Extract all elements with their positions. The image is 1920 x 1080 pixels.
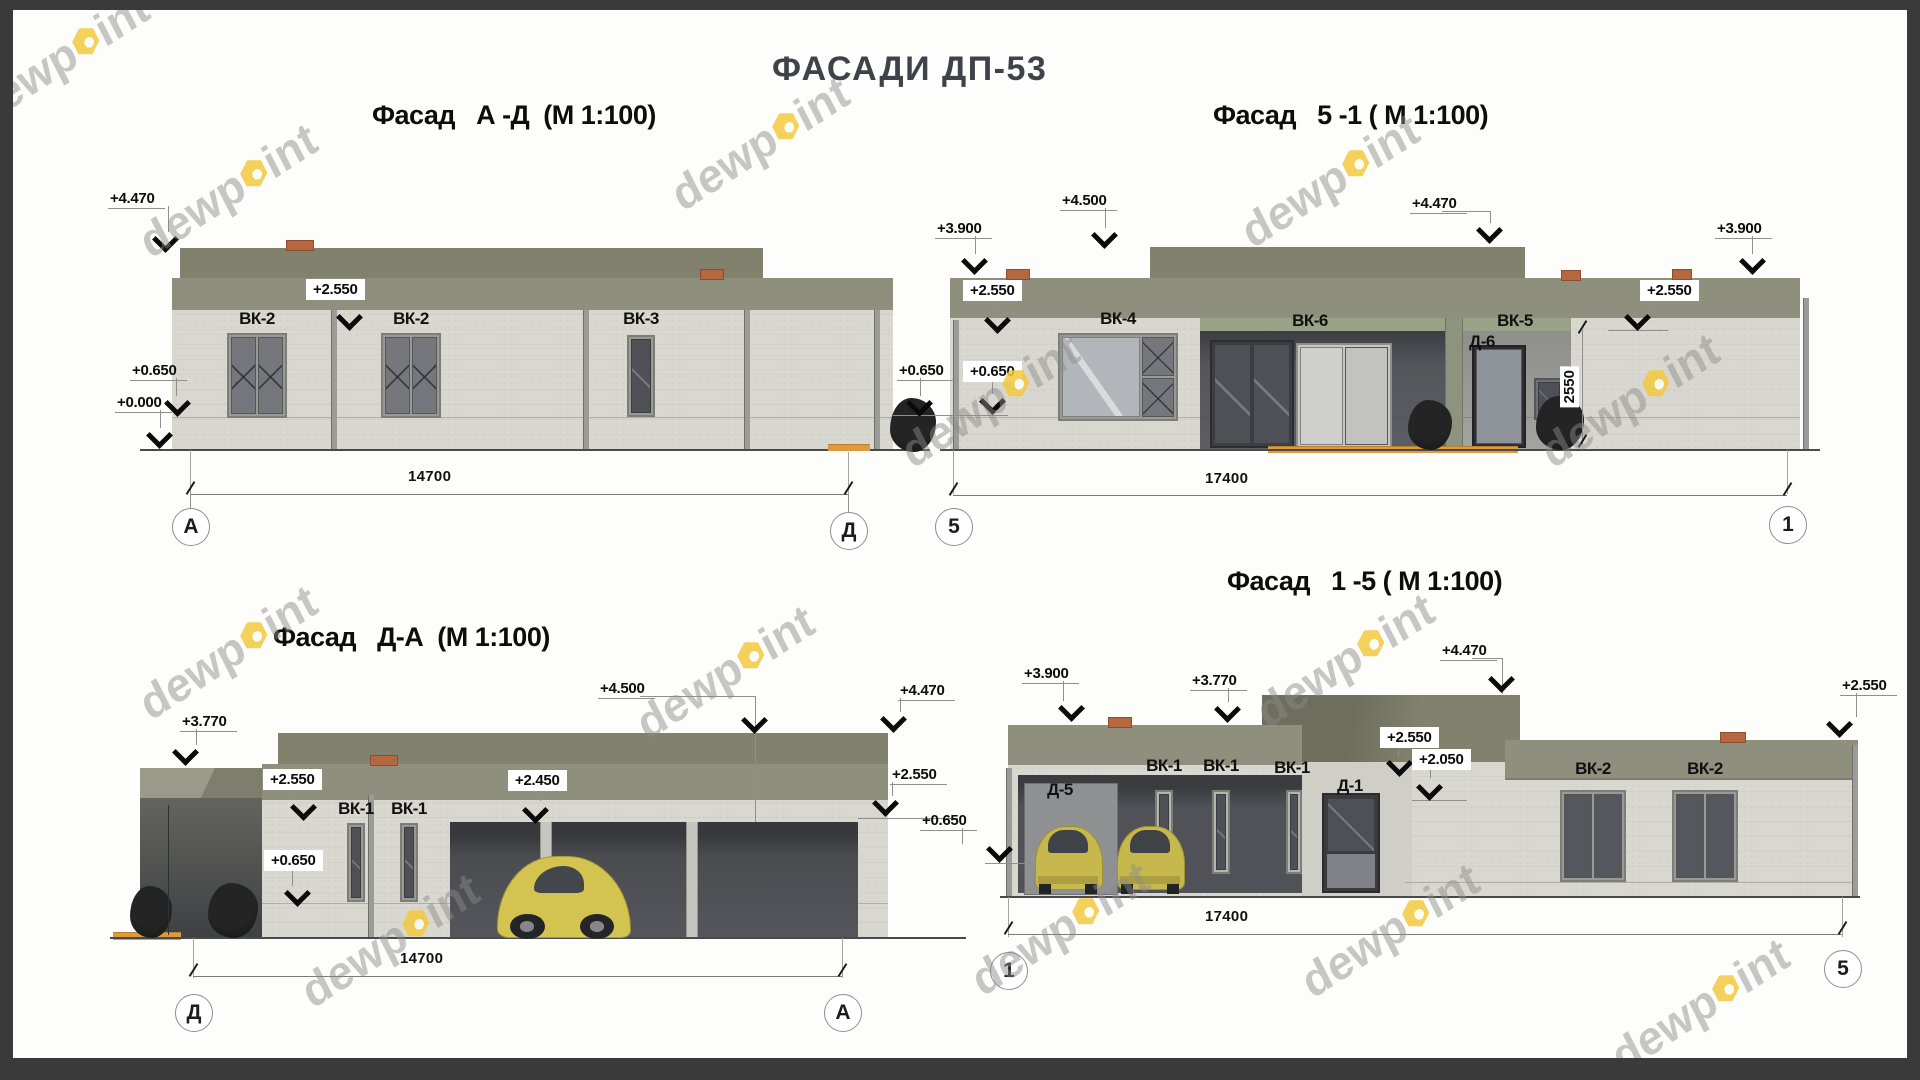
corner-column — [858, 800, 888, 938]
window-label: ВК-1 — [1191, 756, 1251, 776]
chimney — [1108, 717, 1132, 728]
axis-bubble: Д — [175, 994, 213, 1032]
arrow-icon — [1826, 711, 1853, 738]
elevation-marker: +2.450 — [508, 770, 567, 791]
arrow-icon — [1091, 222, 1118, 249]
elevation-marker: +2.550 — [890, 766, 947, 785]
axis-bubble: 5 — [1824, 950, 1862, 988]
window-label: ВК-1 — [1134, 756, 1194, 776]
window-label: ВК-2 — [1563, 759, 1623, 779]
facade-51-title: Фасад 5 -1 ( М 1:100) — [1213, 100, 1488, 131]
arrow-icon — [1476, 217, 1503, 244]
elevation-marker: +3.900 — [935, 220, 992, 239]
window-label: ВК-3 — [611, 309, 671, 329]
axis-bubble: 5 — [935, 508, 973, 546]
window-vk2 — [227, 333, 287, 418]
axis-line — [190, 494, 191, 508]
extension-line — [190, 450, 191, 498]
window-vk2 — [381, 333, 441, 418]
window-label: ВК-2 — [227, 309, 287, 329]
chimney — [1720, 732, 1746, 743]
elevation-marker: +0.650 — [897, 362, 954, 381]
dimension-line — [190, 494, 848, 495]
elevation-marker: +2.550 — [963, 280, 1022, 301]
chimney — [1561, 270, 1581, 281]
sheet-border — [0, 1058, 1920, 1080]
leader-line — [338, 300, 339, 310]
car-side-view — [497, 856, 629, 936]
dimension-line — [193, 976, 842, 977]
extension-line — [1842, 897, 1843, 937]
chimney — [370, 755, 398, 766]
downspout — [1803, 298, 1809, 450]
elevation-marker: +2.050 — [1412, 749, 1471, 770]
elevation-marker: +0.650 — [920, 812, 977, 831]
level-line — [985, 863, 1025, 864]
glazing-line — [168, 805, 169, 935]
window-vk1 — [347, 823, 365, 902]
sheet-border — [0, 0, 1920, 10]
window-label: ВК-2 — [381, 309, 441, 329]
elevation-marker: +2.550 — [1380, 727, 1439, 748]
door-d1 — [1322, 793, 1380, 893]
downspout — [583, 310, 589, 450]
dewpoint-watermark: dewpint — [663, 64, 858, 223]
dewpoint-watermark: dewpint — [1603, 926, 1798, 1080]
entry-step — [828, 444, 870, 451]
elevation-marker: +2.550 — [306, 279, 365, 300]
parapet-band — [172, 278, 893, 312]
downspout — [744, 310, 750, 450]
elevation-marker: +4.470 — [1410, 195, 1467, 214]
ground-line — [140, 449, 930, 451]
dimension-label: 17400 — [1205, 908, 1248, 925]
arrow-icon — [172, 739, 199, 766]
window-label: ВК-2 — [1675, 759, 1735, 779]
entrance-door-vk6 — [1296, 343, 1392, 449]
window-vk1 — [1212, 790, 1230, 874]
leader-line — [1652, 301, 1653, 310]
window-label: ВК-6 — [1280, 311, 1340, 331]
axis-bubble: А — [824, 994, 862, 1032]
leader-line — [1856, 693, 1857, 717]
axis-bubble: 1 — [1769, 506, 1807, 544]
elevation-marker: +3.900 — [1715, 220, 1772, 239]
elevation-marker: +0.650 — [264, 850, 323, 871]
elevation-marker: +2.550 — [1640, 280, 1699, 301]
extension-line — [848, 452, 849, 498]
door-d6 — [1472, 345, 1526, 448]
elevation-marker: +2.550 — [1840, 677, 1897, 696]
downspout — [331, 310, 337, 450]
elevation-marker: +3.900 — [1022, 665, 1079, 684]
downspout — [1006, 768, 1012, 897]
dewpoint-watermark: dewpint — [0, 0, 157, 137]
chimney — [286, 240, 314, 251]
level-line — [1412, 800, 1467, 801]
chimney — [700, 269, 724, 280]
facade-15-title: Фасад 1 -5 ( М 1:100) — [1227, 566, 1502, 597]
chimney — [1672, 269, 1692, 280]
window-label: ВК-1 — [1262, 758, 1322, 778]
dimension-line — [953, 495, 1787, 496]
window-label: ВК-1 — [379, 799, 439, 819]
downspout — [1852, 745, 1858, 897]
dimension-label: 14700 — [408, 468, 451, 485]
window-vk2 — [1560, 790, 1626, 882]
arrow-icon — [961, 248, 988, 275]
arrow-icon — [1488, 666, 1515, 693]
roof-block — [1150, 247, 1525, 279]
arrow-icon — [1739, 248, 1766, 275]
window-label: ВК-1 — [326, 799, 386, 819]
elevation-marker: +2.550 — [263, 769, 322, 790]
leader-line — [540, 791, 541, 801]
dimension-label: 17400 — [1205, 470, 1248, 487]
parapet-band — [262, 764, 888, 802]
downspout — [874, 310, 880, 450]
elevation-marker: +3.770 — [180, 713, 237, 732]
window-label: ВК-4 — [1088, 309, 1148, 329]
arrow-icon — [880, 706, 907, 733]
window-label: ВК-5 — [1485, 311, 1545, 331]
window-vk2 — [1672, 790, 1738, 882]
axis-bubble: А — [172, 508, 210, 546]
storefront-glazing — [1210, 340, 1294, 448]
dewpoint-watermark: dewpint — [628, 593, 823, 752]
sheet-border — [1907, 0, 1920, 1080]
window-vk3 — [627, 335, 655, 417]
elevation-marker: +4.500 — [1060, 192, 1117, 211]
roof-block — [180, 248, 763, 279]
carport-post — [686, 822, 698, 938]
arrow-icon — [1214, 696, 1241, 723]
window-vk1 — [1286, 790, 1302, 874]
elevation-marker: +0.650 — [130, 362, 187, 381]
door-label: Д-1 — [1320, 776, 1380, 796]
chimney — [1006, 269, 1030, 280]
axis-bubble: Д — [830, 512, 868, 550]
door-label: Д-5 — [1030, 780, 1090, 800]
elevation-marker: +4.470 — [898, 682, 955, 701]
leader-line — [1063, 681, 1064, 701]
sheet-border — [0, 0, 13, 1080]
arrow-icon — [741, 707, 768, 734]
side-block-band — [140, 768, 262, 800]
arrow-icon — [146, 422, 173, 449]
axis-line — [848, 494, 849, 512]
door-label: Д-6 — [1452, 332, 1512, 352]
elevation-marker: +4.470 — [1440, 642, 1497, 661]
facade-ad-title: Фасад А -Д (М 1:100) — [372, 100, 656, 131]
elevation-marker: +3.770 — [1190, 672, 1247, 691]
ground-line — [940, 449, 1820, 451]
leader-line — [295, 790, 296, 800]
elevation-marker: +0.000 — [115, 394, 172, 413]
drawing-sheet: ФАСАДИ ДП-53 Фасад А -Д (М 1:100) ВК-2 В… — [0, 0, 1920, 1080]
